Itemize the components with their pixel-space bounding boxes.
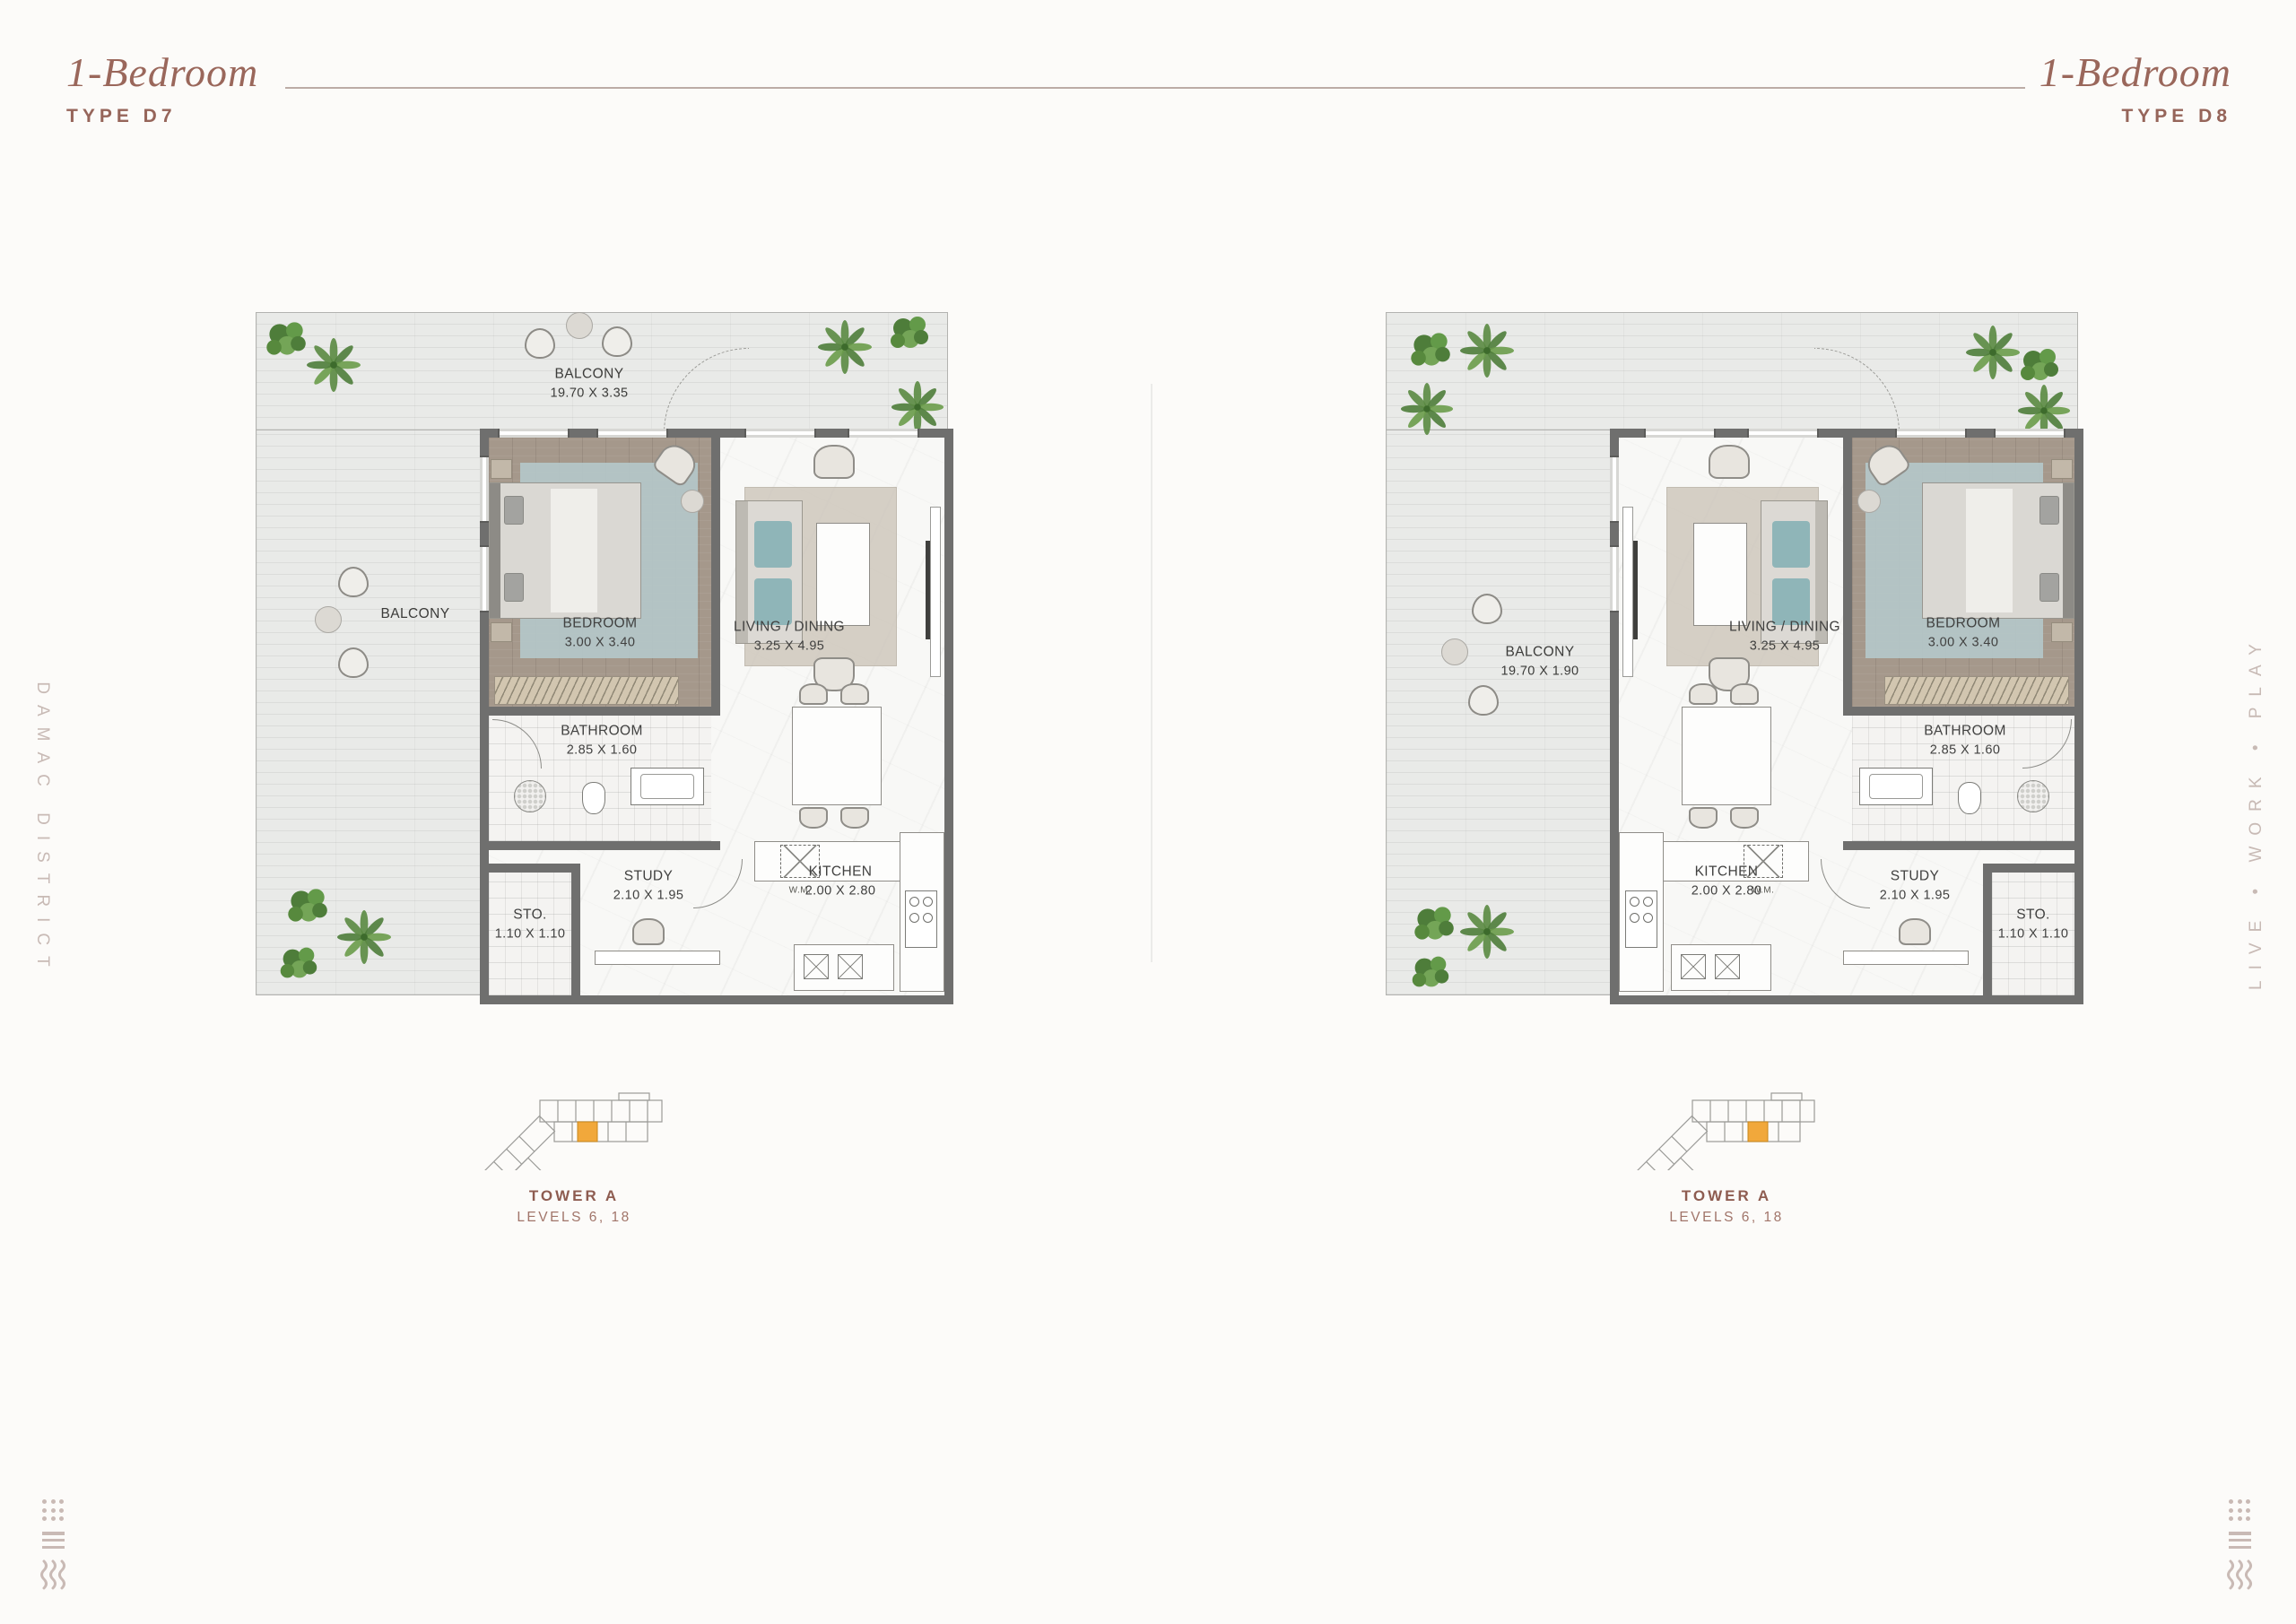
accent-chair	[813, 445, 855, 479]
room-dims: 3.25 X 4.95	[1729, 638, 1840, 656]
balcony-dims: 19.70 X 1.90	[1500, 663, 1578, 682]
bed-headboard	[2063, 483, 2074, 618]
bathroom-label: BATHROOM 2.85 X 1.60	[561, 721, 643, 760]
balcony-side-label: BALCONY 19.70 X 1.90	[1500, 642, 1578, 681]
balcony-table	[566, 312, 593, 339]
plant-palm	[817, 319, 873, 375]
tv	[1633, 541, 1638, 639]
room-dims: 2.85 X 1.60	[1924, 742, 2006, 760]
bed-headboard	[490, 483, 500, 618]
basin	[1869, 774, 1923, 799]
door-swing	[492, 719, 542, 769]
window	[1895, 429, 1967, 438]
bed	[489, 482, 641, 619]
toilet	[1958, 782, 1981, 814]
kitchen-label: KITCHEN 2.00 X 2.80	[1692, 862, 1762, 900]
plant-bush	[1407, 899, 1459, 951]
room-bedroom: BEDROOM 3.00 X 3.40	[489, 438, 711, 707]
room-dims: 2.00 X 2.80	[805, 882, 876, 901]
wardrobe	[1884, 676, 2069, 705]
plant-bush	[274, 940, 322, 988]
plant-bush	[1404, 325, 1456, 377]
plant-bush	[259, 314, 311, 366]
tower-label: TOWER A	[1610, 1187, 1843, 1205]
plant-palm	[1965, 325, 2021, 380]
room-name: STUDY	[624, 868, 674, 883]
burner	[923, 913, 933, 923]
dining-chair	[840, 807, 869, 829]
stove	[1625, 890, 1657, 948]
dining-chair	[1730, 683, 1759, 705]
burner	[909, 913, 919, 923]
dining-chair	[840, 683, 869, 705]
window	[1610, 456, 1619, 523]
balcony-table	[1441, 638, 1468, 665]
room-name: LIVING / DINING	[1729, 619, 1840, 634]
window	[744, 429, 816, 438]
room-dims: 2.10 X 1.95	[613, 887, 684, 906]
room-bathroom: BATHROOM 2.85 X 1.60	[489, 716, 711, 841]
unit-highlight	[1748, 1122, 1768, 1142]
window	[1747, 429, 1819, 438]
center-divider-line	[1151, 384, 1152, 962]
plant-palm	[1459, 904, 1515, 960]
balcony-name: BALCONY	[381, 606, 450, 621]
window	[498, 429, 570, 438]
balcony-name: BALCONY	[555, 366, 624, 381]
room-dims: 2.85 X 1.60	[561, 742, 643, 760]
bedroom-side-table	[1857, 490, 1881, 513]
stove	[905, 890, 937, 948]
room-name: STO.	[513, 907, 547, 922]
key-plan-d8: TOWER A LEVELS 6, 18	[1610, 1081, 1843, 1226]
tower-label: TOWER A	[457, 1187, 691, 1205]
type-label-d7: TYPE D7	[66, 106, 258, 127]
sink	[1715, 954, 1740, 979]
balcony-name: BALCONY	[1506, 644, 1575, 659]
type-label-d8: TYPE D8	[2039, 106, 2231, 127]
room-storage: STO. 1.10 X 1.10	[1992, 873, 2074, 995]
header-divider-line	[285, 87, 2025, 89]
side-label-damac-district: DAMAC DISTRICT	[32, 682, 52, 977]
pillow	[2039, 573, 2059, 602]
living-label: LIVING / DINING 3.25 X 4.95	[1729, 617, 1840, 656]
burner	[923, 897, 933, 907]
wall	[1843, 841, 2074, 850]
coffee-table	[816, 523, 870, 626]
plant-palm	[1459, 323, 1515, 378]
window	[1610, 545, 1619, 612]
wall	[711, 438, 720, 707]
brand-mark-left	[41, 1499, 65, 1592]
sink	[804, 954, 829, 979]
accent-chair	[1709, 445, 1750, 479]
shower	[2017, 780, 2049, 812]
balcony-chair	[1468, 685, 1499, 716]
wall	[1983, 864, 2074, 873]
wall	[1843, 438, 1852, 707]
bedroom-label: BEDROOM 3.00 X 3.40	[1926, 613, 2001, 652]
sink	[1681, 954, 1706, 979]
window	[596, 429, 668, 438]
window	[480, 545, 489, 612]
sofa-cushion	[1772, 521, 1810, 568]
levels-label: LEVELS 6, 18	[457, 1210, 691, 1226]
bathroom-label: BATHROOM 2.85 X 1.60	[1924, 721, 2006, 760]
room-name: LIVING / DINING	[734, 619, 845, 634]
burner	[1643, 897, 1653, 907]
sink	[838, 954, 863, 979]
room-dims: 3.00 X 3.40	[563, 634, 638, 653]
wall	[1983, 864, 1992, 995]
plant-palm	[306, 337, 361, 393]
room-name: BEDROOM	[1926, 615, 2001, 630]
living-label: LIVING / DINING 3.25 X 4.95	[734, 617, 845, 656]
study-label: STUDY 2.10 X 1.95	[1880, 866, 1951, 905]
kitchen-label: KITCHEN 2.00 X 2.80	[805, 862, 876, 900]
floor-plan-d8: BALCONY 19.70 X 1.90 BEDROOM	[1386, 305, 2103, 1031]
window	[1994, 429, 2066, 438]
window	[848, 429, 919, 438]
wall	[489, 841, 720, 850]
tv-console	[930, 507, 941, 677]
wall	[489, 707, 720, 716]
pillow	[2039, 496, 2059, 525]
brochure-page: { "headers": { "left": { "title": "1-Bed…	[0, 0, 2296, 1624]
room-name: BATHROOM	[561, 723, 643, 738]
waves-icon	[2226, 1559, 2253, 1592]
balcony-chair	[525, 328, 555, 359]
side-label-live-work-play: LIVE • WORK • PLAY	[2247, 633, 2266, 990]
balcony-dims: 19.70 X 3.35	[550, 385, 628, 404]
waves-icon	[39, 1559, 66, 1592]
unit-highlight	[578, 1122, 597, 1142]
nightstand	[491, 622, 512, 642]
window	[1644, 429, 1716, 438]
wall	[1843, 707, 2074, 716]
plant-bush	[281, 881, 333, 933]
dining-chair	[1730, 807, 1759, 829]
vanity	[631, 768, 704, 805]
unit-outline: BEDROOM 3.00 X 3.40 BATHROOM 2.85 X 1.60…	[480, 429, 953, 1004]
page-title-left: 1-Bedroom	[66, 52, 258, 93]
wall	[571, 864, 580, 995]
duvet	[551, 489, 597, 612]
balcony-side-label: BALCONY	[381, 604, 450, 624]
kitchen-counter	[794, 944, 894, 991]
tv	[926, 541, 930, 639]
bed	[1922, 482, 2074, 619]
room-dims: 2.10 X 1.95	[1880, 887, 1951, 906]
header-type-d7: 1-Bedroom TYPE D7	[66, 52, 258, 127]
plant-bush	[883, 308, 934, 359]
window	[480, 456, 489, 523]
balcony-chair	[338, 567, 369, 597]
toilet	[582, 782, 605, 814]
plant-palm	[1400, 382, 1454, 436]
room-dims: 1.10 X 1.10	[495, 925, 566, 944]
room-dims: 2.00 X 2.80	[1692, 882, 1762, 901]
room-name: STUDY	[1891, 868, 1940, 883]
burner	[1643, 913, 1653, 923]
nightstand	[2051, 622, 2073, 642]
brand-mark-right	[2228, 1499, 2251, 1592]
door-swing	[693, 859, 743, 908]
plant-palm	[891, 380, 944, 434]
dining-chair	[1689, 683, 1718, 705]
header-type-d8: 1-Bedroom TYPE D8	[2039, 52, 2231, 127]
pillow	[504, 573, 524, 602]
wall	[489, 864, 580, 873]
room-dims: 1.10 X 1.10	[1998, 925, 2069, 944]
pillow	[504, 496, 524, 525]
storage-label: STO. 1.10 X 1.10	[1998, 905, 2069, 943]
room-bedroom: BEDROOM 3.00 X 3.40	[1852, 438, 2074, 707]
dots-grid-icon	[42, 1499, 64, 1521]
wardrobe	[494, 676, 679, 705]
room-name: KITCHEN	[809, 864, 873, 879]
tower-footprint	[475, 1081, 673, 1170]
shower	[514, 780, 546, 812]
nightstand	[2051, 459, 2073, 479]
dining-chair	[799, 683, 828, 705]
bedroom-side-table	[681, 490, 704, 513]
room-name: STO.	[2016, 907, 2050, 922]
kitchen-counter	[1671, 944, 1771, 991]
vanity	[1859, 768, 1933, 805]
levels-label: LEVELS 6, 18	[1610, 1210, 1843, 1226]
room-dims: 3.00 X 3.40	[1926, 634, 2001, 653]
floor-plan-d7: BALCONY 19.70 X 3.35 BALCONY	[256, 305, 973, 1031]
dining-chair	[799, 807, 828, 829]
balcony-chair	[1472, 594, 1502, 624]
tower-footprint	[1628, 1081, 1825, 1170]
room-dims: 3.25 X 4.95	[734, 638, 845, 656]
study-desk	[595, 951, 720, 965]
balcony-chair	[602, 326, 632, 357]
coffee-table	[1693, 523, 1747, 626]
key-plan-d7: TOWER A LEVELS 6, 18	[457, 1081, 691, 1226]
room-storage: STO. 1.10 X 1.10	[489, 873, 571, 995]
dots-grid-icon	[2229, 1499, 2250, 1521]
study-desk	[1843, 951, 1969, 965]
bars-icon	[2229, 1532, 2251, 1549]
plant-bush	[1405, 949, 1454, 997]
study-chair	[1899, 918, 1931, 945]
plant-palm	[336, 909, 392, 965]
duvet	[1966, 489, 2013, 612]
bars-icon	[42, 1532, 65, 1549]
door-swing	[1821, 859, 1870, 908]
burner	[909, 897, 919, 907]
nightstand	[491, 459, 512, 479]
door-swing	[2022, 719, 2072, 769]
balcony-top-label: BALCONY 19.70 X 3.35	[550, 364, 628, 403]
tv-console	[1622, 507, 1633, 677]
burner	[1630, 913, 1639, 923]
balcony-table	[315, 606, 342, 633]
storage-label: STO. 1.10 X 1.10	[495, 905, 566, 943]
dining-table	[1682, 707, 1771, 805]
study-label: STUDY 2.10 X 1.95	[613, 866, 684, 905]
room-name: KITCHEN	[1695, 864, 1759, 879]
basin	[640, 774, 694, 799]
dining-table	[792, 707, 882, 805]
balcony-chair	[338, 647, 369, 678]
unit-outline: BEDROOM 3.00 X 3.40 BATHROOM 2.85 X 1.60…	[1610, 429, 2083, 1004]
study-chair	[632, 918, 665, 945]
room-name: BATHROOM	[1924, 723, 2006, 738]
sofa-cushion	[754, 521, 792, 568]
bedroom-label: BEDROOM 3.00 X 3.40	[563, 613, 638, 652]
dining-chair	[1689, 807, 1718, 829]
page-title-right: 1-Bedroom	[2039, 52, 2231, 93]
room-name: BEDROOM	[563, 615, 638, 630]
room-bathroom: BATHROOM 2.85 X 1.60	[1852, 716, 2074, 841]
burner	[1630, 897, 1639, 907]
